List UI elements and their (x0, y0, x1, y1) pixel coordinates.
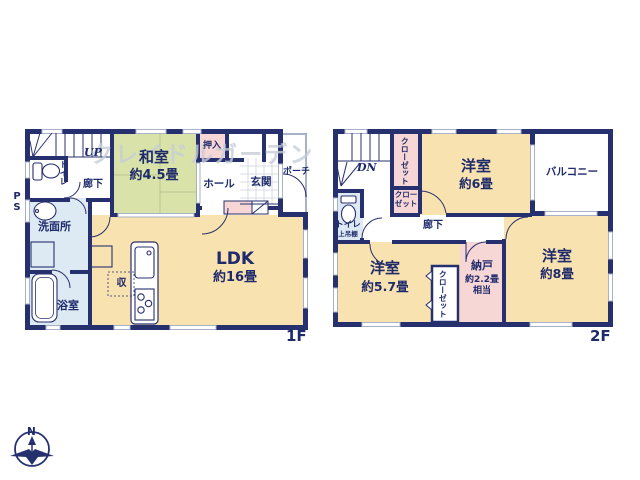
nando-size-label: 約2.2畳 (462, 275, 502, 285)
toilet2-tank-icon (341, 196, 356, 203)
compass-north-label: N (27, 426, 36, 438)
ldk-size-label: 約16畳 (170, 271, 300, 286)
washitsu-name-label: 和室 (112, 149, 196, 166)
balcony-label: バルコニー (538, 166, 606, 178)
bedroom8-name-label: 洋室 (508, 248, 606, 265)
bathroom-label: 浴室 (57, 300, 79, 313)
porch-label: ポーチ (283, 167, 309, 177)
bedroom6-name-label: 洋室 (426, 158, 526, 175)
floor2-label: 2F (590, 328, 611, 345)
pipe-space-label: PS (11, 191, 23, 213)
nando-name-label: 納戸 (462, 260, 502, 273)
ldk-name-label: LDK (170, 250, 300, 270)
closet-tall-label: クローゼット (400, 137, 409, 185)
toilet-2f-note: 上吊棚 (335, 231, 361, 238)
genkan-label: 玄関 (242, 176, 280, 188)
bedroom57-size-label: 約5.7畳 (340, 280, 430, 294)
floorplan-drawing (0, 0, 640, 480)
closet-57-label: クローゼット (438, 270, 447, 318)
oshiire-label: 押入 (198, 141, 226, 151)
washitsu-size-label: 約4.5畳 (112, 169, 196, 184)
toilet-tank-icon (33, 163, 42, 180)
corridor-1f-label: 廊下 (83, 179, 103, 191)
storage-label: 収 (109, 278, 134, 290)
bedroom6-size-label: 約6畳 (426, 177, 526, 191)
nando-size2-label: 相当 (462, 286, 502, 296)
bedroom8-size-label: 約8畳 (508, 267, 606, 281)
hall-label: ホール (198, 178, 240, 190)
bedroom57-name-label: 洋室 (340, 260, 430, 277)
floor2-fixtures (341, 196, 356, 223)
floorplan-page: クレイドルガーデン UP トイレ 廊下 PS 洗面所 浴室 和室 約4.5畳 押… (0, 0, 640, 480)
stairs-dn-label: DN (357, 162, 377, 175)
washroom-label: 洗面所 (38, 221, 71, 234)
corridor-2f-label: 廊下 (423, 220, 443, 232)
stairs-2f (337, 133, 390, 186)
floor1-label: 1F (286, 328, 307, 345)
toilet-1f-label: トイレ (57, 160, 67, 186)
washbasin-faucet-icon (36, 210, 39, 213)
kitchen-faucet-icon (147, 251, 151, 255)
closet-small-label: クローゼット (393, 191, 419, 208)
stairs-up-label: UP (84, 147, 102, 160)
